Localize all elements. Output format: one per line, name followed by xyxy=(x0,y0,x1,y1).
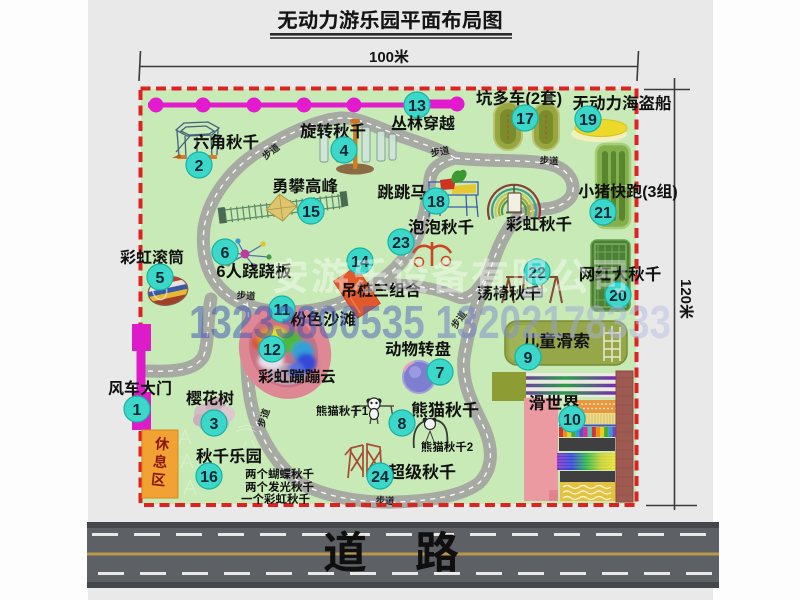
svg-text:21: 21 xyxy=(594,205,612,222)
svg-text:1: 1 xyxy=(362,406,369,418)
svg-text:6: 6 xyxy=(216,263,225,281)
svg-text:8: 8 xyxy=(398,416,407,433)
svg-text:2: 2 xyxy=(467,442,473,454)
svg-text:10: 10 xyxy=(563,412,581,429)
svg-text:(3: (3 xyxy=(642,184,656,201)
svg-text:23: 23 xyxy=(392,235,410,252)
svg-text:4: 4 xyxy=(340,143,349,160)
svg-text:24: 24 xyxy=(371,469,389,486)
svg-text:17: 17 xyxy=(516,111,534,128)
svg-text:18: 18 xyxy=(427,194,445,211)
svg-text:16: 16 xyxy=(200,469,218,486)
svg-text:3: 3 xyxy=(210,416,219,433)
svg-text:100: 100 xyxy=(369,49,394,66)
svg-text:9: 9 xyxy=(524,350,533,367)
svg-text:): ) xyxy=(557,90,563,108)
svg-text:7: 7 xyxy=(436,365,445,382)
svg-text:15: 15 xyxy=(302,204,320,221)
svg-text:): ) xyxy=(672,184,677,201)
svg-text:2: 2 xyxy=(195,158,204,175)
svg-text:19: 19 xyxy=(579,112,597,129)
svg-text:120: 120 xyxy=(677,279,694,304)
svg-text:13: 13 xyxy=(408,98,426,115)
svg-text:13233800535 13202178333: 13233800535 13202178333 xyxy=(189,296,671,348)
svg-text:6: 6 xyxy=(221,245,230,262)
svg-text:5: 5 xyxy=(156,270,165,287)
svg-text:1: 1 xyxy=(133,402,142,419)
